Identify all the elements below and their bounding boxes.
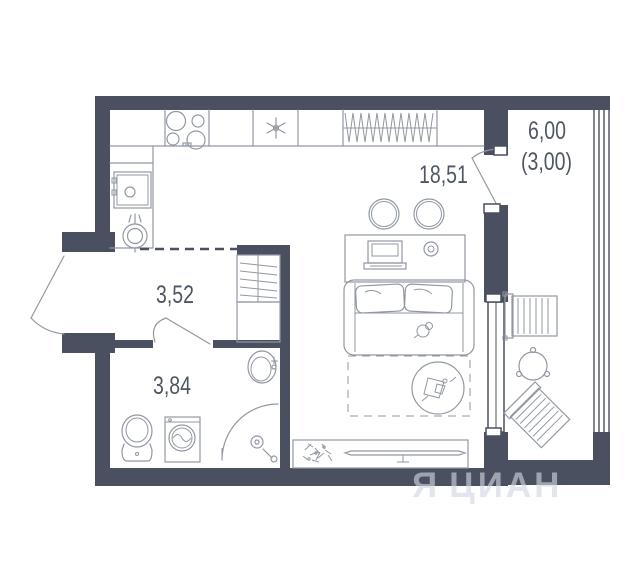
entrance-door (31, 256, 64, 334)
shower-icon (222, 404, 278, 462)
label-area-hallway: 3,52 (156, 281, 194, 310)
balcony-door (472, 146, 507, 213)
label-area-balcony-full: 6,00 (528, 117, 566, 146)
stove-icon (167, 112, 206, 150)
label-area-living-kitchen: 18,51 (419, 161, 468, 190)
toilet-icon (122, 415, 152, 461)
floor-plan: 18,51 3,52 3,84 6,00 (3,00) ЯЦИАН (0, 0, 640, 579)
bathroom-door (153, 318, 210, 344)
hall-closet-icon (237, 255, 280, 342)
plant-sprig-icon (303, 444, 332, 462)
stool-icons (369, 199, 444, 229)
balcony-chair-bottom-icon (504, 382, 571, 449)
bathroom-sink-icon (248, 351, 278, 383)
label-area-bathroom: 3,84 (153, 372, 191, 401)
kitchen-sink-icon (112, 172, 151, 208)
floor-plant-icon (412, 362, 464, 414)
balcony-glazing (594, 110, 609, 432)
wardrobe-icon (343, 113, 437, 142)
label-area-balcony-reduced: (3,00) (521, 148, 572, 177)
cian-watermark: ЯЦИАН (412, 466, 562, 506)
sofa-bed-icon (344, 280, 474, 355)
balcony-chair-top-icon (503, 292, 557, 340)
bed-foldout-zone (348, 356, 470, 416)
balcony-window (486, 294, 504, 436)
washing-machine-icon (165, 417, 200, 462)
cian-brand-text: ЦИАН (449, 466, 562, 506)
fridge-icon (267, 118, 285, 138)
cian-logo-icon: Я (412, 466, 440, 506)
water-heater-icon (123, 214, 147, 252)
desk-icon (345, 235, 465, 282)
balcony-table-icon (517, 348, 550, 381)
